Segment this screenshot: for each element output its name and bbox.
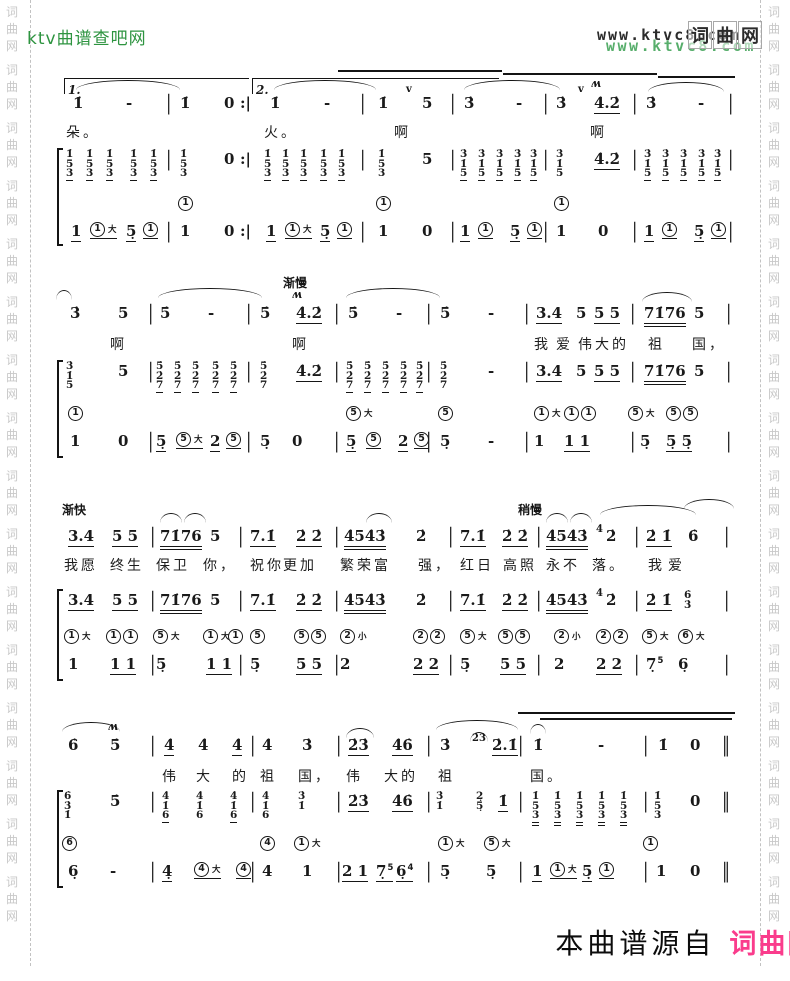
slur-arc <box>56 290 72 300</box>
chords-token: 1̇53 <box>86 150 93 181</box>
chords-token: 5 <box>576 362 586 380</box>
chords-token: 1̇ <box>498 792 508 812</box>
chords-token: 1̇53 <box>320 150 327 181</box>
bass-token: 5 <box>226 432 241 449</box>
chords-token: 5̇2̇7 <box>192 362 199 393</box>
footer-brand-link[interactable]: 词曲网 <box>729 929 790 960</box>
melody-token: 5̇ <box>260 304 270 322</box>
tie-line <box>518 712 735 714</box>
lyrics-token: 国， <box>298 768 332 786</box>
chords-token: 3̇1̇ <box>436 792 443 811</box>
lyrics-token: 红日 <box>460 557 494 575</box>
circles-token: 5大 <box>484 836 511 851</box>
bass-token: 6̣ <box>68 862 78 880</box>
system-3: 渐快稍慢3.45 5|71̇765|7.1̇2̇ 2̇|4̇54̇3̇2̇|7.… <box>0 497 790 702</box>
bass-token: 5̣ <box>260 432 270 450</box>
chords-token: 5 5 <box>112 591 138 611</box>
tie-line <box>540 718 732 720</box>
melody-token: 2̇3̇ <box>348 736 369 756</box>
circles-token: 1 <box>554 196 569 211</box>
bass-token: 1 <box>527 222 542 239</box>
melody-token: 3̇ <box>302 736 312 754</box>
melody-token: 1̇ <box>658 736 668 754</box>
melody-token: 71̇76 <box>644 304 686 327</box>
melody-token: 1̇ <box>270 94 280 112</box>
bass-token: 5̣ <box>320 222 330 242</box>
chords-token: 2̇ 2̇ <box>502 591 528 611</box>
chords-token: 3̇1̇5 <box>514 150 521 181</box>
circles-token: 55 <box>294 629 326 644</box>
bass-token: 1大 <box>285 222 312 239</box>
chords-token: 4̇54̇3̇ <box>546 591 588 614</box>
melody-token: - <box>516 94 522 112</box>
melody-token: 2̇3̇ <box>472 730 486 748</box>
chords-token: 5̇2̇7 <box>364 362 371 393</box>
melody-token: | <box>630 301 635 324</box>
chords-token: 1̇53 <box>264 150 271 181</box>
melody-token: | <box>148 301 153 324</box>
circles-token: 1 <box>376 196 391 211</box>
circles-token: 5大 <box>642 629 669 644</box>
melody-token: 5 <box>422 94 432 112</box>
chords-token: 1̇53 <box>180 150 187 179</box>
bass-token: 7̣5 <box>646 655 663 673</box>
chords-token: | <box>336 789 341 812</box>
lyrics-token: 我愿 <box>64 557 98 575</box>
chords-token: | <box>334 359 339 382</box>
melody-token: 2̇ <box>606 527 616 545</box>
bass-token: | <box>360 219 365 242</box>
chords-token: 2̣5̣ <box>476 792 483 811</box>
chords-token: 5̇ <box>110 792 120 810</box>
tie-line <box>338 70 502 72</box>
circles-token: 55 <box>498 629 530 644</box>
bass-token: 1 <box>534 432 544 450</box>
melody-token: | <box>524 301 529 324</box>
bass-token: 0 <box>690 862 700 880</box>
bass-token: 2 2 <box>413 655 439 675</box>
lyrics-token: 爱 <box>556 336 573 354</box>
chords-token: | <box>426 789 431 812</box>
footer-source-text: 本曲谱源自 <box>555 927 715 960</box>
lyrics-token: 的 <box>612 336 629 354</box>
bass-token: | <box>238 652 243 675</box>
lyrics-token: 爱 <box>668 557 685 575</box>
chords-token: 1̇53 <box>66 150 73 181</box>
slur-arc <box>160 513 182 523</box>
melody-token: 3̇ <box>464 94 474 112</box>
chords-token: 3̇1̇ <box>298 792 305 811</box>
melody-token: | <box>543 91 548 114</box>
chords-token: 6̇3̇ <box>684 591 691 610</box>
slur-arc <box>184 513 206 523</box>
slur-arc <box>642 292 692 302</box>
lyrics-token: 祖 <box>648 336 665 354</box>
melody-token: 0 <box>690 736 700 754</box>
melody-token: 3̇ <box>646 94 656 112</box>
circles-token: 11 <box>106 629 138 644</box>
melody-token: | <box>334 301 339 324</box>
chords-token: 1̇53 <box>106 150 113 181</box>
bass-token: 1大 <box>550 862 577 879</box>
bass-token: 2 <box>554 655 564 673</box>
bass-token: ‖ <box>722 859 730 882</box>
melody-token: 4̇54̇3̇ <box>344 527 386 550</box>
circles-token: 1 <box>643 836 658 851</box>
bass-token: 5̣ <box>156 432 166 452</box>
melody-token: 3.4 <box>68 527 94 547</box>
melody-token: 5 <box>694 304 704 322</box>
lyrics-token: 繁荣富 <box>340 557 391 575</box>
bass-token: 1 <box>460 222 470 242</box>
lyrics-token: 终生 <box>110 557 144 575</box>
bass-token: | <box>448 652 453 675</box>
melody-token: :| <box>240 94 251 112</box>
breath-mark: v <box>578 84 584 95</box>
chords-token: 2̇ 2̇ <box>296 591 322 611</box>
chords-token: | <box>450 147 455 170</box>
lyrics-token: 啊 <box>590 124 607 142</box>
melody-token: | <box>150 733 155 756</box>
melody-token: | <box>448 524 453 547</box>
melody-token: 4̇ <box>164 736 174 756</box>
bass-token: 1 <box>644 222 654 242</box>
chords-token: 5̇2̇7 <box>400 362 407 393</box>
bass-token: | <box>632 219 637 242</box>
melody-token: | <box>336 733 341 756</box>
chords-token: | <box>150 588 155 611</box>
breath-mark: v <box>406 84 412 95</box>
melody-token: | <box>632 91 637 114</box>
bass-token: 0 <box>118 432 128 450</box>
chords-token: 5̇2̇7 <box>346 362 353 393</box>
bass-token: 5̣ <box>510 222 520 242</box>
melody-token: 3.4 <box>536 304 562 324</box>
bass-token: | <box>536 652 541 675</box>
chords-token: 5 <box>118 362 128 380</box>
tie-line <box>503 73 657 75</box>
chords-token: 4̇54̇3̇ <box>344 591 386 614</box>
melody-token: 1̇ <box>180 94 190 112</box>
bass-token: 1 <box>302 862 312 880</box>
melody-token: | <box>536 524 541 547</box>
bass-token: | <box>630 429 635 452</box>
slur-arc <box>346 288 440 298</box>
tremolo-mark: ʍ <box>591 77 599 90</box>
chords-token: 4̇ <box>596 585 603 603</box>
chords-token: | <box>726 359 731 382</box>
bass-token: | <box>724 652 729 675</box>
chords-token: - <box>488 362 494 380</box>
lyrics-token: 祝你 <box>250 557 284 575</box>
circles-token: 11 <box>564 406 596 421</box>
chords-token: 4̇1̇6 <box>262 792 269 821</box>
melody-token: - <box>488 304 494 322</box>
chords-token: 5̇2̇7 <box>174 362 181 393</box>
lyrics-token: 伟 <box>162 768 179 786</box>
melody-token: - <box>598 736 604 754</box>
chords-token: 5̇2̇7 <box>212 362 219 393</box>
melody-token: 5̇ <box>348 304 358 322</box>
lyrics-token: 大 <box>196 768 213 786</box>
bass-token: - <box>110 862 116 880</box>
bass-token: 2 2 <box>596 655 622 675</box>
melody-token: 2̇ 2̇ <box>296 527 322 547</box>
system-1: 1.2.vvʍ1̇-|1̇0:|1̇-|1̇5|3̇-|3̇4̇.2̇|3̇-|… <box>0 70 790 275</box>
chords-token: 4̇6̇ <box>392 792 413 812</box>
bass-token: 5̣ <box>640 432 650 450</box>
chords-token: | <box>426 359 431 382</box>
bass-token: | <box>726 429 731 452</box>
lyrics-token: 国， <box>692 336 726 354</box>
chords-token: 6̇3̇1̇ <box>64 792 71 821</box>
melody-token: 2̇ <box>416 527 426 545</box>
melody-token: 1̇ <box>73 94 83 112</box>
bass-token: | <box>336 859 341 882</box>
bass-token: 1 1 <box>110 655 136 675</box>
bass-token: | <box>250 859 255 882</box>
lyrics-token: 更加 <box>283 557 317 575</box>
melody-token: 4̇ <box>596 521 603 539</box>
bass-token: 1 <box>662 222 677 239</box>
lyrics-token: 落。 <box>592 557 626 575</box>
chords-token: 3̇1̇5 <box>714 150 721 181</box>
circles-token: 1 <box>228 629 243 644</box>
system-4: ʍ6̇5̇|4̇4̇4̇|4̇3̇|2̇3̇4̇6̇|3̇2̇3̇2̇.1̇|1… <box>0 712 790 917</box>
melody-token: | <box>643 733 648 756</box>
chords-token: 3̇1̇5 <box>460 150 467 181</box>
melody-token: 5 <box>576 304 586 322</box>
chords-token: 2̇3̇ <box>348 792 369 812</box>
staff-brace <box>57 360 63 458</box>
melody-token: 5 <box>118 304 128 322</box>
bass-token: 5̣ <box>440 432 450 450</box>
lyrics-token: 祖 <box>260 768 277 786</box>
chords-token: 71̇76 <box>160 591 202 614</box>
bass-token: 0 <box>422 222 432 240</box>
bass-token: 2 <box>340 655 350 673</box>
bass-token: 0 <box>598 222 608 240</box>
chords-token: 4̇.2̇ <box>296 362 322 382</box>
slur-arc <box>546 513 568 523</box>
melody-token: | <box>426 301 431 324</box>
bass-token: | <box>543 219 548 242</box>
bass-token: 1 <box>711 222 726 239</box>
tempo-mark: 渐快 <box>62 501 86 518</box>
lyrics-token: 大的 <box>384 768 418 786</box>
bass-token: 5̣ <box>250 655 260 673</box>
circles-token: 22 <box>413 629 445 644</box>
chords-token: 2̇ 1̇ <box>646 591 672 611</box>
bass-token: 5大 <box>176 432 203 449</box>
circles-token: 1大 <box>294 836 321 851</box>
chords-token: 4̇1̇6 <box>230 792 237 823</box>
melody-token: 7.1̇ <box>460 527 486 547</box>
melody-token: | <box>166 91 171 114</box>
chords-token: | <box>166 147 171 170</box>
bass-token: 0 <box>292 432 302 450</box>
melody-token: 2̇ 1̇ <box>646 527 672 547</box>
circles-token: 2小 <box>554 629 581 644</box>
melody-token: 5 5 <box>112 527 138 547</box>
melody-token: | <box>250 733 255 756</box>
melody-token: 5̇ <box>160 304 170 322</box>
melody-token: 4̇.2̇ <box>594 94 620 114</box>
bass-token: | <box>728 219 733 242</box>
melody-token: 6̇ <box>688 527 698 545</box>
lyrics-token: 强， <box>418 557 452 575</box>
bass-token: | <box>634 652 639 675</box>
lyrics-token: 伟 <box>346 768 363 786</box>
chords-token: :| <box>240 150 251 168</box>
chords-token: | <box>448 588 453 611</box>
melody-token: | <box>518 733 523 756</box>
circles-token: 6大 <box>678 629 705 644</box>
melody-token: | <box>150 524 155 547</box>
chords-token: 4̇1̇6 <box>196 792 203 821</box>
circles-token: 1大 <box>534 406 561 421</box>
bass-token: 1 <box>266 222 276 242</box>
bass-token: | <box>518 859 523 882</box>
melody-token: 5̇ <box>440 304 450 322</box>
bass-token: 5̣ <box>694 222 704 242</box>
chords-token: 5 <box>422 150 432 168</box>
lyrics-token: 保卫 <box>156 557 190 575</box>
chords-token: 3̇1̇5 <box>556 150 563 179</box>
chords-token: | <box>543 147 548 170</box>
bass-token: 5 5 <box>296 655 322 675</box>
melody-token: 3̇ <box>70 304 80 322</box>
chords-token: | <box>518 789 523 812</box>
circles-token: 5大 <box>628 406 655 421</box>
staff-brace <box>57 589 63 681</box>
chords-token: | <box>728 147 733 170</box>
melody-token: 4̇ <box>232 736 242 756</box>
melody-token: | <box>450 91 455 114</box>
melody-token: | <box>246 301 251 324</box>
circles-token: 1 <box>178 196 193 211</box>
chords-token: 4̇.2̇ <box>594 150 620 170</box>
bass-token: 1 <box>68 655 78 673</box>
melody-token: 6̇ <box>68 736 78 754</box>
bass-token: :| <box>240 222 251 240</box>
chords-token: 5 <box>210 591 220 609</box>
chords-token: 3̇1̇5 <box>530 150 537 181</box>
slur-arc <box>684 499 734 509</box>
slur-arc <box>570 513 592 523</box>
lyrics-token: 祖 <box>438 768 455 786</box>
bass-token: 6̣ <box>678 655 688 673</box>
chords-token: 1̇53 <box>576 792 583 826</box>
melody-token: 1̇ <box>533 736 543 754</box>
bass-token: | <box>150 652 155 675</box>
melody-token: - <box>324 94 330 112</box>
bass-token: 6̣4 <box>396 862 413 882</box>
melody-token: 3̇ <box>440 736 450 754</box>
melody-token: | <box>360 91 365 114</box>
bass-token: 7̣5 <box>376 862 393 882</box>
bass-token: 1 <box>71 222 81 242</box>
chords-token: 5̇2̇7 <box>416 362 423 393</box>
melody-token: | <box>426 733 431 756</box>
melody-token: | <box>728 91 733 114</box>
chords-token: | <box>360 147 365 170</box>
chords-token: 1̇53 <box>554 792 561 826</box>
circles-token: 22 <box>596 629 628 644</box>
chords-token: 3.4 <box>68 591 94 611</box>
circles-token: 5 <box>438 406 453 421</box>
chords-token: 1̇53 <box>598 792 605 826</box>
melody-token: 5 5 <box>594 304 620 324</box>
circles-token: 5大 <box>346 406 373 421</box>
slur-arc <box>158 288 262 298</box>
bass-token: 1 1 <box>564 432 590 452</box>
chords-token: 2̇ <box>416 591 426 609</box>
bass-token: 4 <box>236 862 251 879</box>
chords-token: 5̇2̇7 <box>382 362 389 393</box>
melody-token: | <box>726 301 731 324</box>
circles-token: 6 <box>62 836 77 851</box>
bass-token: 1 <box>532 862 542 882</box>
music-score: 1.2.vvʍ1̇-|1̇0:|1̇-|1̇5|3̇-|3̇4̇.2̇|3̇-|… <box>0 0 790 966</box>
melody-token: | <box>724 524 729 547</box>
chords-token: 3̇1̇5 <box>662 150 669 181</box>
melody-token: 1̇ <box>378 94 388 112</box>
bass-token: 5̣ <box>486 862 496 880</box>
chords-token: | <box>150 789 155 812</box>
melody-token: | <box>238 524 243 547</box>
chords-token: | <box>334 588 339 611</box>
slur-arc <box>436 720 518 730</box>
bass-token: - <box>488 432 494 450</box>
melody-token: 2̇.1̇ <box>492 736 518 756</box>
bass-token: | <box>150 859 155 882</box>
melody-token: - <box>126 94 132 112</box>
slur-arc <box>366 513 392 523</box>
slur-arc <box>600 505 696 515</box>
lyrics-token: 火。 <box>264 124 298 142</box>
melody-token: 4̇.2̇ <box>296 304 322 324</box>
staff-brace <box>57 148 63 246</box>
chords-token: 1̇53 <box>130 150 137 181</box>
chords-token: 5 5 <box>594 362 620 382</box>
lyrics-token: 永不 <box>546 557 580 575</box>
bass-token: 1 <box>378 222 388 240</box>
chords-token: 5̇2̇7 <box>440 362 447 391</box>
bass-token: 5̣ <box>440 862 450 880</box>
melody-token: ‖ <box>722 733 730 756</box>
bass-token: 1 <box>70 432 80 450</box>
melody-token: - <box>396 304 402 322</box>
chords-token: | <box>634 588 639 611</box>
chords-token: 2̇ <box>606 591 616 609</box>
chords-token: 7.1̇ <box>460 591 486 611</box>
system-2: 渐慢ʍ3̇5|5̇-|5̇4̇.2̇|5̇-|5̇-|3.455 5|71̇76… <box>0 270 790 475</box>
lyrics-token: 大 <box>595 336 612 354</box>
tempo-mark: 稍慢 <box>518 501 542 518</box>
chords-token: | <box>238 588 243 611</box>
bass-token: 2 <box>210 432 220 452</box>
bass-token: 1 <box>656 862 666 880</box>
bass-token: 1大 <box>90 222 117 239</box>
chords-token: 1̇53 <box>150 150 157 181</box>
bass-token: 1 <box>337 222 352 239</box>
chords-token: | <box>250 789 255 812</box>
bass-token: | <box>450 219 455 242</box>
bass-token: 1 1 <box>206 655 232 675</box>
circles-token: 1 <box>68 406 83 421</box>
chords-token: 1̇53 <box>620 792 627 826</box>
